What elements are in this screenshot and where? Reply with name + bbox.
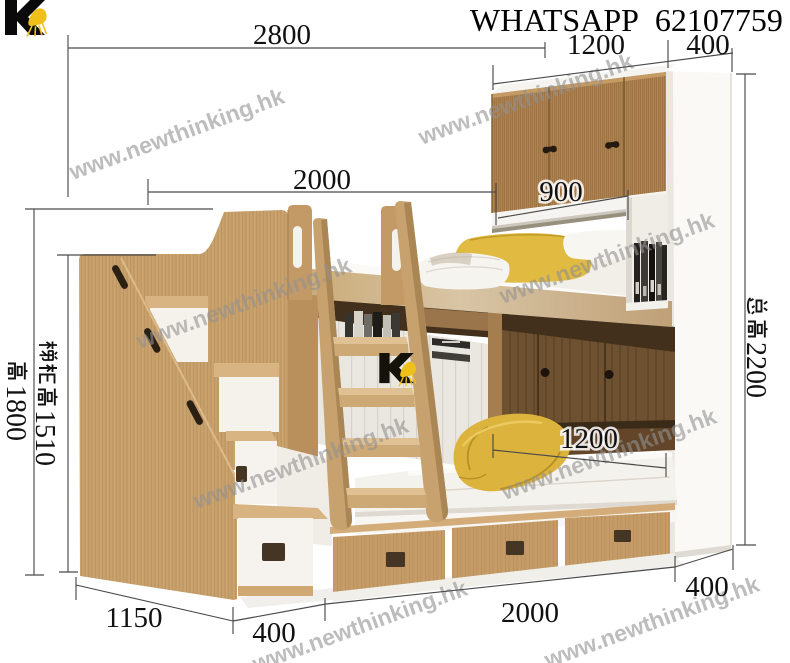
svg-text:WHATSAPP 62107759: WHATSAPP 62107759 <box>470 2 783 38</box>
svg-text:400: 400 <box>252 617 296 649</box>
svg-text:400: 400 <box>685 571 729 603</box>
svg-text:2200: 2200 <box>740 342 771 398</box>
svg-text:2800: 2800 <box>253 19 311 51</box>
svg-text:2000: 2000 <box>501 597 559 629</box>
svg-text:900: 900 <box>539 176 583 208</box>
svg-text:1200: 1200 <box>560 423 618 455</box>
svg-text:2000: 2000 <box>293 164 351 196</box>
svg-text:1510: 1510 <box>29 410 60 466</box>
svg-text:1800: 1800 <box>0 385 31 441</box>
svg-text:1150: 1150 <box>106 602 163 634</box>
